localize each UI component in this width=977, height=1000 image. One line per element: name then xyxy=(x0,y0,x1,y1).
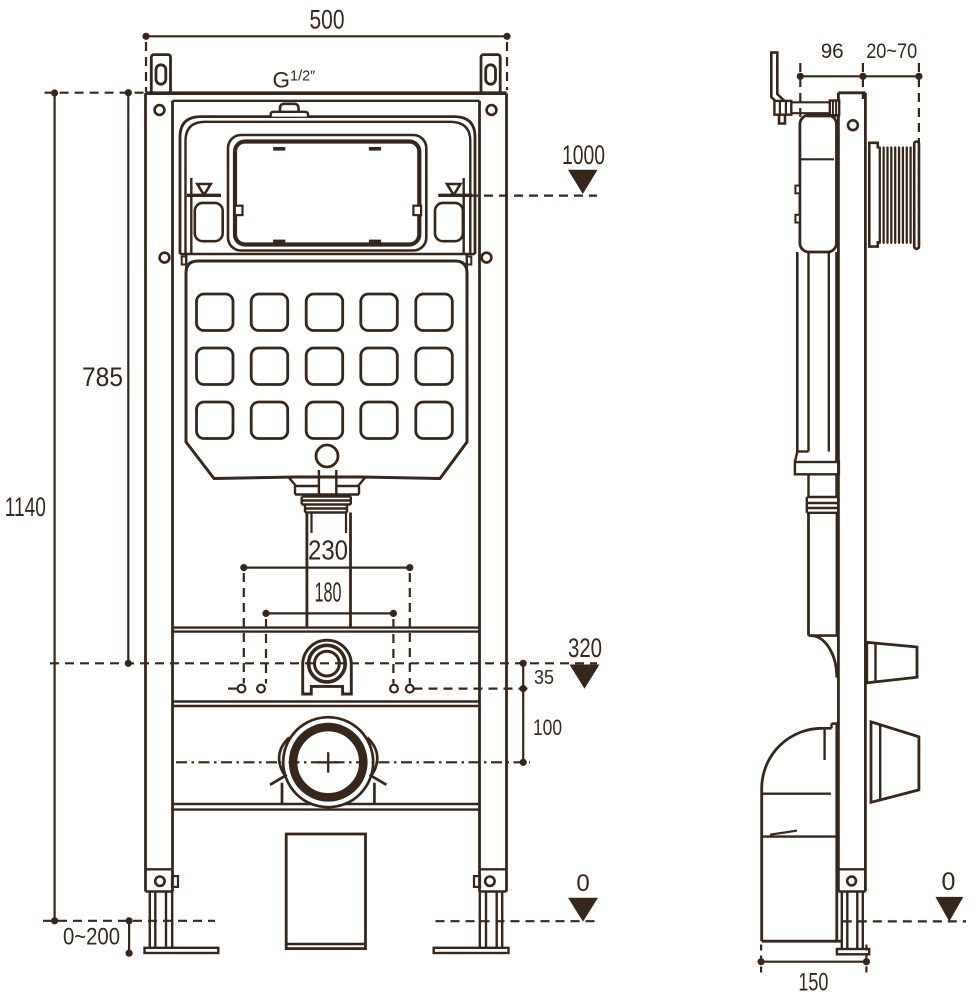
svg-text:500: 500 xyxy=(310,5,345,35)
svg-text:150: 150 xyxy=(798,969,828,997)
svg-text:230: 230 xyxy=(308,535,348,566)
svg-text:0: 0 xyxy=(576,870,589,897)
svg-text:100: 100 xyxy=(533,715,562,740)
svg-text:1140: 1140 xyxy=(5,492,46,522)
svg-text:785: 785 xyxy=(82,362,123,392)
svg-text:0~200: 0~200 xyxy=(63,924,120,951)
svg-text:180: 180 xyxy=(315,577,342,608)
svg-text:35: 35 xyxy=(534,667,554,689)
svg-text:20~70: 20~70 xyxy=(866,40,917,63)
svg-text:0: 0 xyxy=(942,868,956,896)
svg-text:1000: 1000 xyxy=(562,140,605,170)
svg-text:320: 320 xyxy=(568,633,602,663)
svg-text:96: 96 xyxy=(821,40,844,63)
